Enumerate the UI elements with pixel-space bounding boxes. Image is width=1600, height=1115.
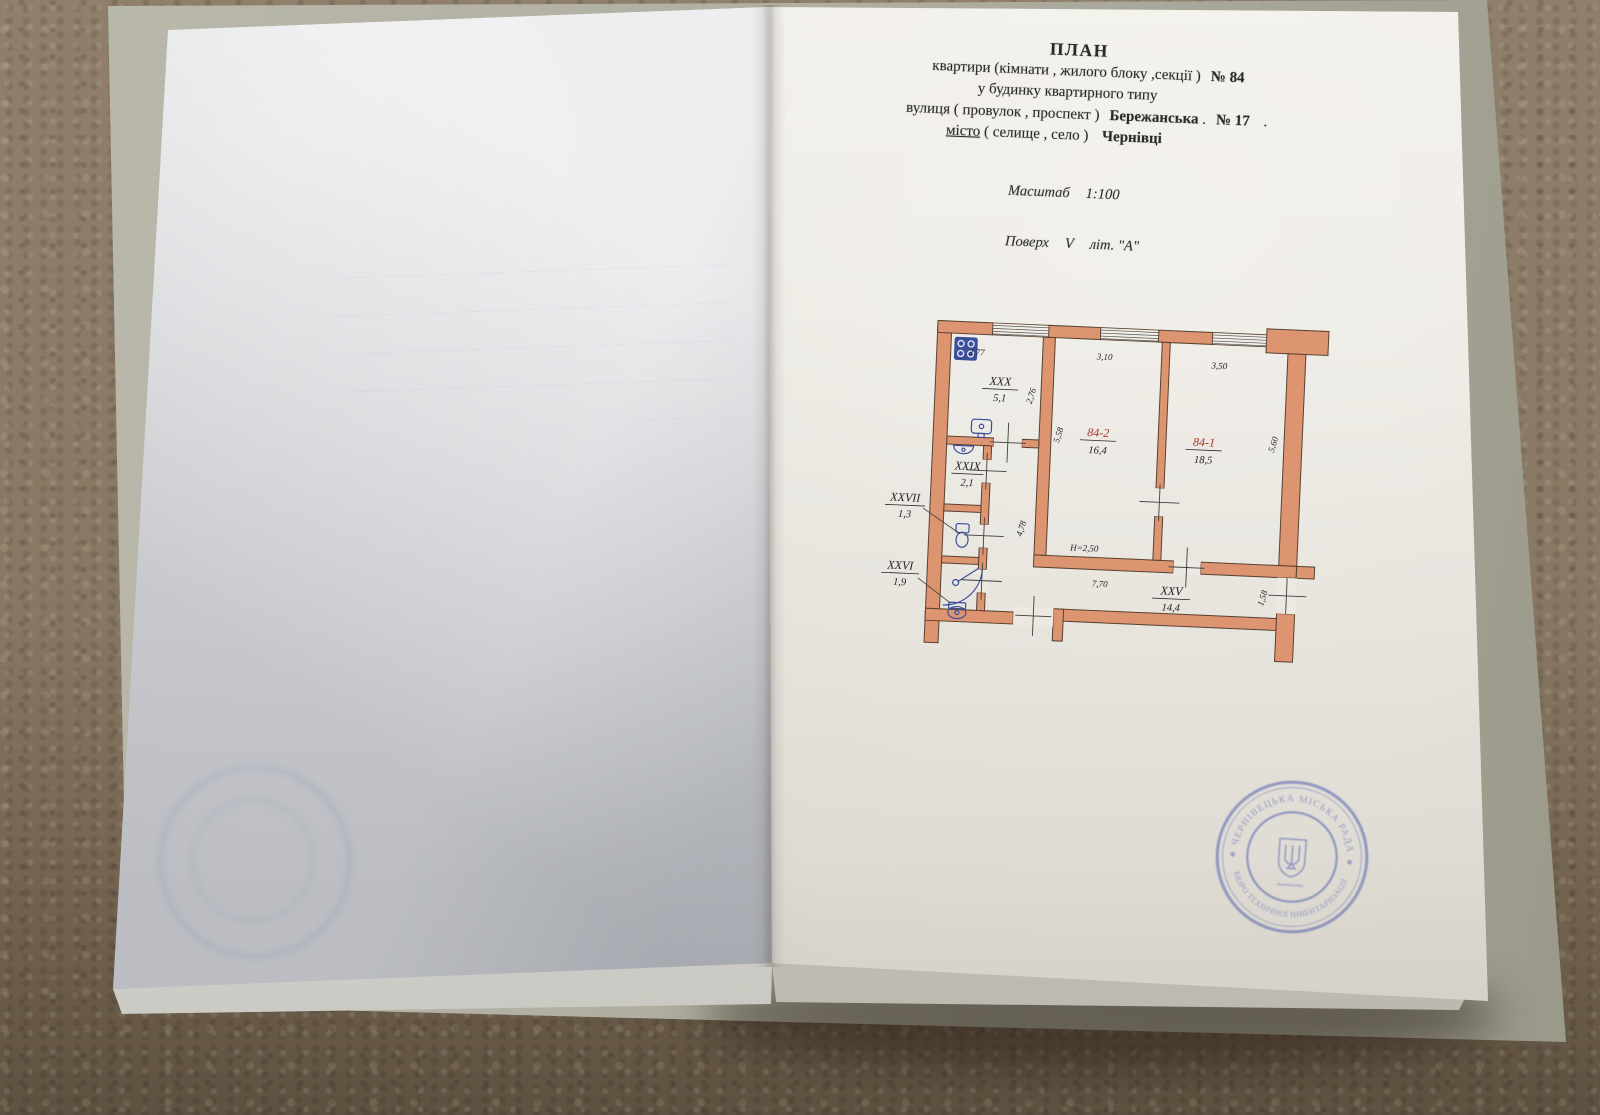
svg-text:14,4: 14,4	[1161, 602, 1181, 614]
toilet-icon	[955, 523, 969, 547]
stamp-bleedthrough	[158, 765, 352, 959]
svg-text:XXVI: XXVI	[886, 557, 915, 572]
washbasin-icon	[953, 445, 973, 454]
svg-text:16,4: 16,4	[1088, 445, 1108, 457]
ceiling-height-note: Н=2,50	[1069, 542, 1099, 553]
page-bleedthrough-lines	[330, 240, 730, 420]
dim-room2-width: 3,10	[1096, 351, 1114, 362]
stamp-separator-right: ✱	[1346, 858, 1354, 867]
walls	[924, 314, 1329, 663]
stamp-separator-left: ✱	[1229, 850, 1237, 859]
svg-text:84-1: 84-1	[1193, 435, 1216, 450]
window-symbols	[992, 323, 1266, 347]
svg-text:1,9: 1,9	[893, 577, 907, 589]
room-label-xxvii: XXVII 1,3	[884, 489, 925, 521]
dim-hall-height: 4,78	[1014, 519, 1028, 538]
dim-room2-height: 5,58	[1051, 426, 1065, 445]
kitchen-sink-icon	[971, 419, 992, 438]
svg-text:2,1: 2,1	[960, 478, 974, 490]
room-label-corridor: XXV 14,4	[1152, 583, 1191, 615]
dim-room1-height: 5,60	[1266, 435, 1280, 454]
round-stamp: ЧЕРНІВЕЦЬКА МІСЬКА РАДА БЮРО ТЕХНІЧНОЇ І…	[1201, 770, 1384, 944]
room-label-kitchen: XXX 5,1	[981, 373, 1018, 405]
svg-text:5,1: 5,1	[993, 393, 1007, 405]
svg-text:XXV: XXV	[1159, 583, 1184, 598]
svg-text:1,3: 1,3	[898, 509, 912, 521]
shower-icon	[943, 567, 983, 607]
dim-kitchen-width: 2,77	[969, 347, 986, 358]
floor-plan: 2,77 3,10 3,50 2,76 5,58 5,60 4,78 7,70 …	[866, 298, 1361, 684]
dim-exit-width: 1,58	[1255, 589, 1269, 608]
room-label-84-1: 84-1 18,5	[1185, 434, 1222, 467]
svg-text:XXVII: XXVII	[889, 490, 922, 505]
page-fold	[752, 5, 786, 967]
stamp-trident-emblem	[1278, 838, 1307, 878]
dim-room1-width: 3,50	[1210, 360, 1228, 371]
svg-text:18,5: 18,5	[1194, 455, 1213, 467]
dim-kitchen-height: 2,76	[1024, 386, 1038, 405]
svg-text:XXX: XXX	[988, 374, 1012, 389]
room-label-xxvi: XXVI 1,9	[880, 557, 919, 589]
door-openings	[975, 437, 1303, 638]
svg-text:84-2: 84-2	[1087, 425, 1110, 440]
svg-text:XXIX: XXIX	[953, 458, 981, 473]
room-label-84-2: 84-2 16,4	[1079, 425, 1116, 458]
room-label-xxix: XXIX 2,1	[951, 458, 984, 489]
stamp-small-text-line	[1277, 883, 1303, 887]
dim-corridor-width: 7,70	[1092, 578, 1109, 589]
